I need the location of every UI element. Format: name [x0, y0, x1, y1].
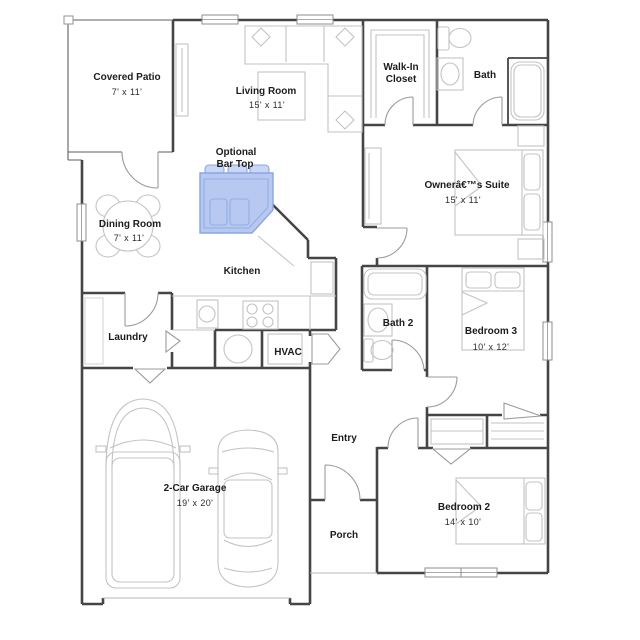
label-living-room: Living Room [236, 86, 297, 97]
bath2-fixtures [364, 269, 426, 362]
patio-door [122, 152, 158, 188]
label-walk-in-1: Walk-In [383, 62, 418, 73]
living-room-furniture [245, 26, 362, 132]
pillow [524, 154, 540, 190]
floor-plan: Covered Patio 7' x 11' Living Room 15' x… [0, 0, 640, 640]
pillow [526, 482, 542, 510]
label-bedroom3: Bedroom 3 [465, 326, 518, 337]
label-optional-2: Bar Top [216, 159, 253, 170]
dresser [365, 148, 381, 224]
dims-covered-patio: 7' x 11' [112, 87, 143, 97]
label-walk-in-2: Closet [386, 74, 417, 85]
dims-bedroom3: 10' x 12' [473, 342, 510, 352]
walk-in-closet-door [385, 97, 413, 125]
bedroom3-furniture [462, 268, 524, 350]
label-laundry: Laundry [108, 332, 148, 343]
laundry-fixture [85, 298, 103, 364]
bed [455, 150, 543, 235]
bedroom3-door [427, 377, 457, 407]
bath2-door [392, 340, 424, 370]
blanket-fold [462, 292, 487, 315]
label-covered-patio: Covered Patio [93, 72, 160, 83]
pillow [524, 194, 540, 230]
front-door [325, 465, 360, 500]
bath-sink [441, 63, 459, 85]
nightstand [518, 126, 544, 146]
sofa-pillow [336, 28, 354, 46]
toilet-bowl [449, 29, 471, 48]
pillow [526, 513, 542, 541]
bedroom3-window [543, 322, 552, 360]
toilet-tank [364, 339, 373, 362]
toilet-bowl [371, 341, 393, 360]
label-porch: Porch [330, 530, 358, 541]
dims-bedroom2: 14' x 10' [445, 517, 482, 527]
label-garage: 2-Car Garage [164, 483, 227, 494]
nightstand [518, 239, 544, 259]
label-bath: Bath [474, 70, 496, 81]
owners-suite-furniture [365, 126, 544, 259]
optional-bar-top-island [200, 165, 273, 233]
kitchen-sink [199, 306, 215, 322]
label-optional-1: Optional [216, 147, 257, 158]
toilet-tank [438, 27, 449, 50]
pillow [495, 272, 520, 288]
dims-living-room: 15' x 11' [249, 100, 285, 110]
laundry-passage-door [166, 331, 180, 352]
dims-garage: 19' x 20' [177, 498, 214, 508]
bedroom2-door [388, 418, 418, 448]
dining-window [77, 204, 86, 241]
living-room-window-2 [297, 15, 333, 24]
label-owners-suite: Ownerâ€™s Suite [424, 180, 509, 191]
car [209, 430, 287, 587]
label-hvac: HVAC [274, 347, 302, 358]
kitchen-counters [172, 236, 336, 330]
patio-corner-post [64, 16, 73, 24]
owners-suite-door [377, 228, 407, 258]
sofa-pillow [252, 28, 270, 46]
bathtub [511, 62, 544, 120]
label-dining-room: Dining Room [99, 219, 161, 230]
floor-plan-page: Covered Patio 7' x 11' Living Room 15' x… [0, 0, 640, 640]
refrigerator [311, 262, 333, 294]
dims-dining-room: 7' x 11' [114, 233, 145, 243]
bedroom2-closet-bifold [433, 449, 470, 464]
bedroom2-window [425, 568, 497, 577]
dims-owners-suite: 15' x 11' [445, 195, 481, 205]
water-heater [224, 335, 252, 363]
living-room-window-1 [202, 15, 238, 24]
patio-wall-glass [176, 44, 188, 116]
laundry-door [125, 293, 158, 326]
label-kitchen: Kitchen [224, 266, 261, 277]
laundry-garage-door [135, 369, 165, 383]
pillow [466, 272, 491, 288]
bedroom3-closet-bifold [504, 403, 541, 419]
label-bath2: Bath 2 [383, 318, 414, 329]
sofa-pillow [336, 111, 354, 129]
bed [462, 268, 524, 350]
label-entry: Entry [331, 433, 357, 444]
label-bedroom2: Bedroom 2 [438, 502, 491, 513]
hvac-bifold-door [312, 334, 340, 364]
bath-door [473, 97, 502, 125]
